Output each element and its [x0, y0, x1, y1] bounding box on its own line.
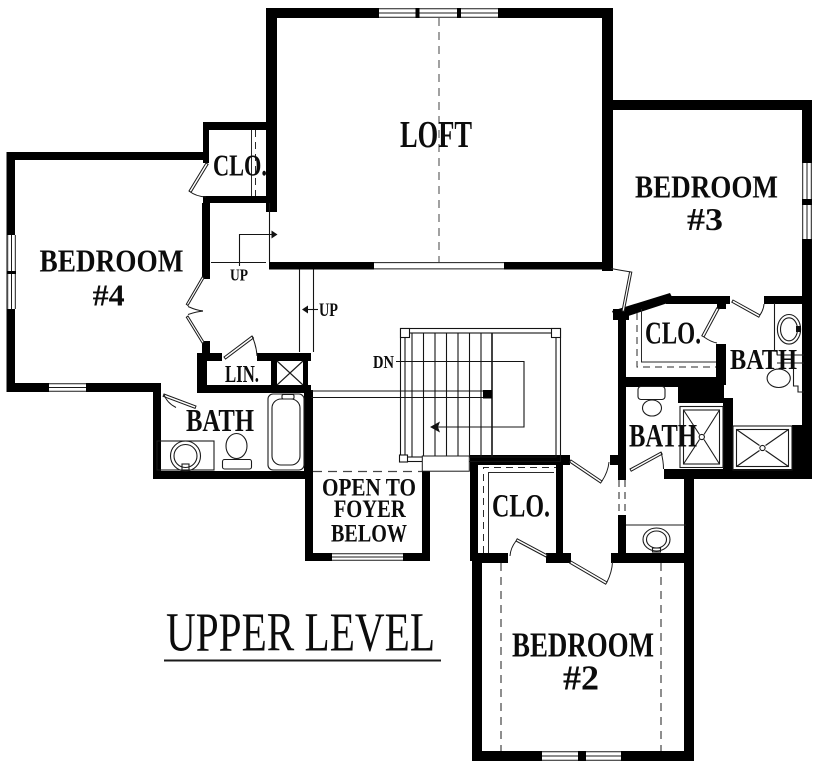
- svg-text:LOFT: LOFT: [400, 114, 472, 156]
- svg-text:BATH: BATH: [186, 402, 254, 438]
- svg-text:CLO.: CLO.: [213, 148, 267, 183]
- svg-text:BATH: BATH: [730, 344, 797, 376]
- svg-text:LIN.: LIN.: [225, 362, 259, 388]
- svg-text:CLO.: CLO.: [492, 489, 550, 525]
- svg-text:BEDROOM: BEDROOM: [40, 243, 184, 279]
- svg-text:UP: UP: [230, 266, 248, 285]
- svg-text:DN: DN: [373, 352, 394, 372]
- svg-text:UP: UP: [319, 300, 338, 321]
- svg-text:UPPER LEVEL: UPPER LEVEL: [166, 602, 435, 663]
- svg-text:BEDROOM: BEDROOM: [635, 169, 778, 205]
- svg-text:#3: #3: [687, 201, 723, 237]
- svg-text:FOYER: FOYER: [334, 496, 407, 523]
- svg-text:BATH: BATH: [629, 419, 697, 455]
- svg-text:CLO.: CLO.: [645, 315, 701, 351]
- svg-text:#4: #4: [93, 278, 125, 313]
- svg-text:BELOW: BELOW: [331, 521, 407, 548]
- svg-text:#2: #2: [563, 659, 599, 698]
